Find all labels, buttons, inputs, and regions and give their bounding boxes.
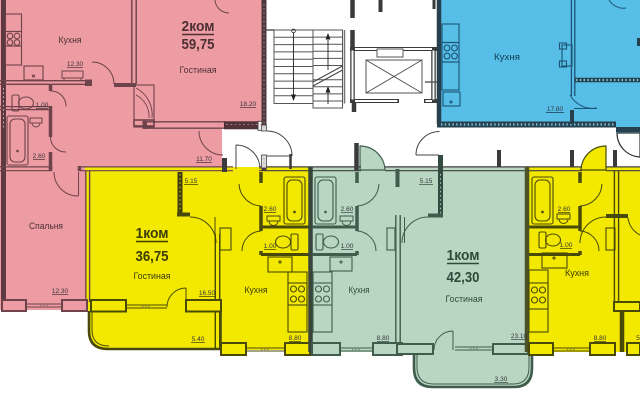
svg-text:59,75: 59,75: [182, 36, 215, 53]
svg-text:Гостиная: Гостиная: [180, 65, 217, 75]
svg-text:Гостиная: Гостиная: [134, 271, 171, 281]
svg-text:8.80: 8.80: [377, 335, 390, 342]
svg-text:Кухня: Кухня: [59, 35, 82, 45]
svg-text:1.00: 1.00: [36, 102, 49, 109]
svg-text:1.00: 1.00: [341, 243, 354, 250]
svg-text:2ком: 2ком: [182, 18, 215, 35]
svg-text:11.70: 11.70: [196, 156, 212, 163]
svg-text:1.00: 1.00: [264, 243, 277, 250]
svg-text:2.60: 2.60: [264, 206, 277, 213]
svg-text:8.80: 8.80: [289, 335, 302, 342]
svg-text:12.30: 12.30: [67, 61, 84, 68]
svg-text:12.30: 12.30: [52, 288, 69, 295]
svg-text:1ком: 1ком: [136, 225, 169, 242]
svg-text:Кухня: Кухня: [565, 268, 589, 278]
svg-text:16.50: 16.50: [199, 290, 216, 297]
svg-text:1.00: 1.00: [560, 242, 573, 249]
svg-text:Спальня: Спальня: [29, 221, 63, 231]
svg-text:8.80: 8.80: [594, 335, 607, 342]
svg-text:42,30: 42,30: [447, 269, 480, 286]
svg-text:17.80: 17.80: [547, 106, 564, 113]
svg-text:2.60: 2.60: [341, 206, 354, 213]
svg-text:Кухня: Кухня: [494, 52, 520, 62]
svg-text:Кухня: Кухня: [349, 285, 370, 295]
svg-text:5.15: 5.15: [420, 178, 433, 185]
svg-text:Гостиная: Гостиная: [446, 294, 483, 304]
svg-text:2.60: 2.60: [33, 153, 46, 160]
svg-text:5.: 5.: [636, 335, 640, 342]
svg-text:1ком: 1ком: [447, 247, 480, 264]
svg-text:23.10: 23.10: [511, 333, 528, 340]
svg-text:Кухня: Кухня: [245, 285, 268, 295]
svg-text:5.15: 5.15: [185, 178, 198, 185]
svg-text:18.20: 18.20: [240, 101, 257, 108]
svg-text:36,75: 36,75: [136, 248, 169, 265]
svg-text:5.40: 5.40: [192, 336, 205, 343]
svg-text:2.60: 2.60: [558, 206, 571, 213]
svg-text:3.30: 3.30: [495, 376, 508, 383]
